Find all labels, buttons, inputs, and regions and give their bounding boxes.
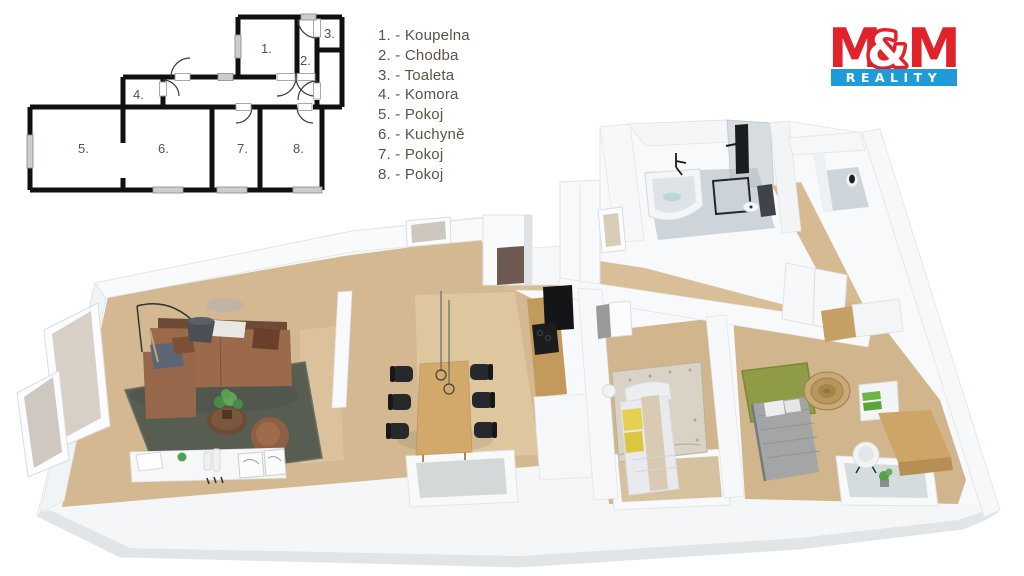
yellow-pillow xyxy=(622,408,643,431)
entry-door-column xyxy=(483,215,532,285)
vase xyxy=(213,449,220,471)
legend-item-1: 1. - Koupelna xyxy=(378,26,470,46)
hall-wall xyxy=(532,246,563,285)
bedroom7-door-leaf xyxy=(609,301,632,337)
room-label-2: 2. xyxy=(300,53,311,68)
legend-item-8: 8. - Pokoj xyxy=(378,165,470,185)
kitchen-island xyxy=(534,394,592,480)
hall-closet xyxy=(560,180,600,285)
nightstand xyxy=(603,385,616,398)
vase xyxy=(204,452,211,470)
room-legend: 1. - Koupelna 2. - Chodba 3. - Toaleta 4… xyxy=(378,26,470,184)
ceiling-lamp-shadow xyxy=(206,298,244,312)
real-estate-floorplan-page: { "legend": { "items": [ "1. - Koupelna"… xyxy=(0,0,1024,576)
bathroom-top-wall xyxy=(628,120,730,146)
picture-frame xyxy=(238,452,264,478)
room-label-1: 1. xyxy=(261,41,272,56)
bedroom7-door-gap xyxy=(596,304,611,339)
sofa-blanket xyxy=(212,320,246,338)
shelf-wood xyxy=(821,306,856,342)
room-label-3: 3. xyxy=(324,26,335,41)
logo-ampersand: & xyxy=(867,23,907,77)
sofa-pillow-dark xyxy=(252,328,280,350)
room-label-4: 4. xyxy=(133,87,144,102)
bathtub-water xyxy=(663,193,681,202)
bed-pillow xyxy=(764,400,785,417)
small-plant-icon xyxy=(178,453,187,462)
shelf-white xyxy=(852,299,903,337)
legend-item-3: 3. - Toaleta xyxy=(378,66,470,86)
mm-reality-logo: M M & REALITY xyxy=(831,23,958,86)
legend-item-6: 6. - Kuchyně xyxy=(378,125,470,145)
picture-frame xyxy=(264,449,286,476)
floor-plan-2d: 1. 2. 3. 4. 5. 6. 7. 8. xyxy=(27,14,342,193)
plan-windows xyxy=(27,14,322,193)
legend-item-4: 4. - Komora xyxy=(378,85,470,105)
logo-reality-text: REALITY xyxy=(846,70,943,85)
bed-yellow xyxy=(620,382,679,495)
yellow-pillow xyxy=(624,431,644,453)
room-label-5: 5. xyxy=(78,141,89,156)
paper-sheet xyxy=(136,452,163,471)
rattan-chair xyxy=(804,372,850,410)
dining-table xyxy=(416,361,472,455)
entry-door xyxy=(497,246,524,285)
corridor-window xyxy=(598,207,626,253)
logo-canvas: M M & REALITY xyxy=(831,23,958,86)
legend-item-2: 2. - Chodba xyxy=(378,46,470,66)
living-window-lower xyxy=(17,371,69,477)
scene-canvas: 1. 2. 3. 4. 5. 6. 7. 8. xyxy=(0,0,1024,576)
room-label-6: 6. xyxy=(158,141,169,156)
shower-column xyxy=(735,124,749,174)
far-wall-window xyxy=(406,217,451,247)
legend-item-7: 7. - Pokoj xyxy=(378,145,470,165)
room-label-7: 7. xyxy=(237,141,248,156)
bed-pillow xyxy=(784,399,801,413)
legend-item-5: 5. - Pokoj xyxy=(378,105,470,125)
sideboard xyxy=(130,448,286,484)
plan-walls xyxy=(30,17,342,190)
shower-glass xyxy=(727,120,774,188)
room-label-8: 8. xyxy=(293,141,304,156)
